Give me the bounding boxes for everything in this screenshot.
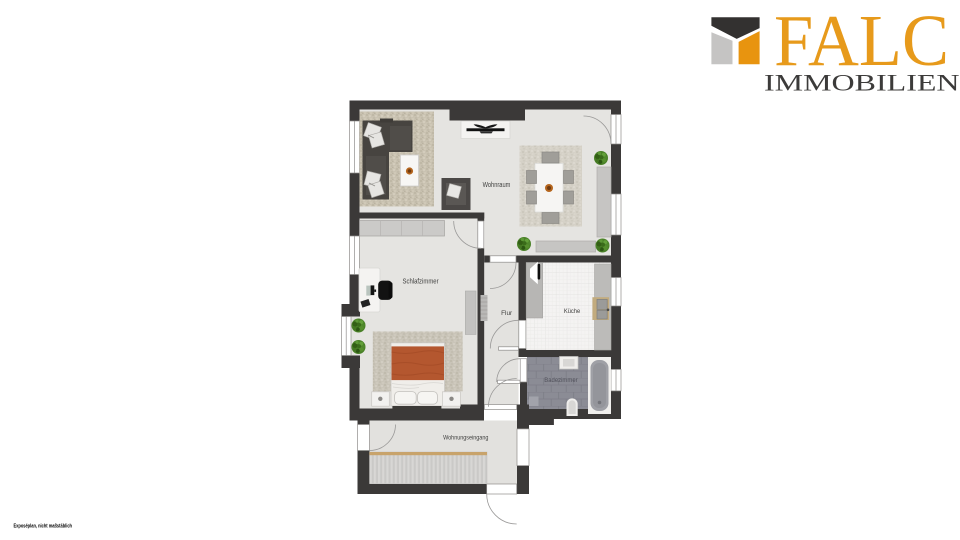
- svg-text:Badezimmer: Badezimmer: [544, 377, 578, 384]
- svg-text:Schlafzimmer: Schlafzimmer: [403, 278, 440, 285]
- svg-text:Exposéplan, nicht maßstäblich: Exposéplan, nicht maßstäblich: [14, 524, 73, 530]
- svg-text:Flur: Flur: [501, 310, 513, 317]
- svg-text:Küche: Küche: [564, 308, 581, 315]
- svg-text:FALC: FALC: [774, 0, 949, 81]
- svg-text:IMMOBILIEN: IMMOBILIEN: [764, 70, 960, 96]
- svg-text:Wohnungseingang: Wohnungseingang: [443, 434, 488, 441]
- svg-text:Wohnraum: Wohnraum: [483, 182, 511, 189]
